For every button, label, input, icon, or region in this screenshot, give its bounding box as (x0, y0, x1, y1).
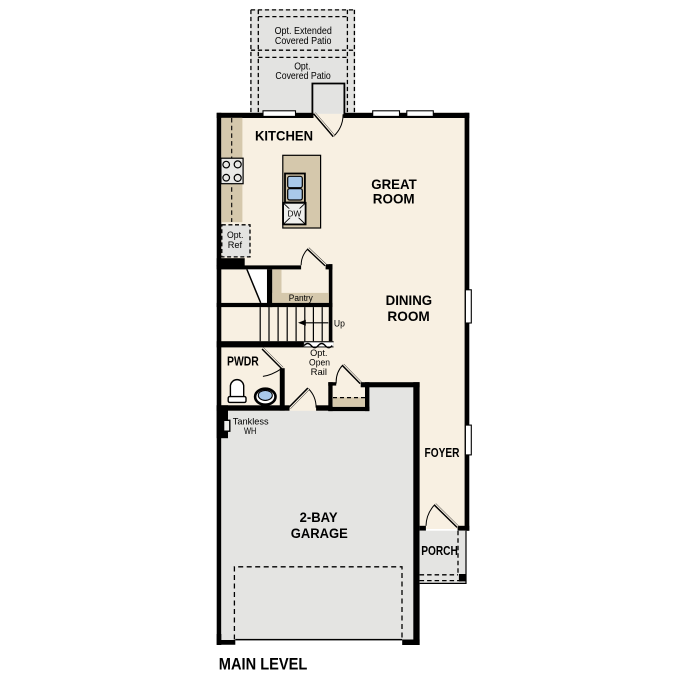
svg-text:MAIN LEVEL: MAIN LEVEL (219, 655, 307, 673)
svg-text:Pantry: Pantry (289, 293, 313, 303)
svg-text:ROOM: ROOM (387, 308, 429, 324)
svg-text:DINING: DINING (386, 292, 433, 308)
svg-text:GARAGE: GARAGE (291, 526, 348, 541)
svg-text:2-BAY: 2-BAY (300, 510, 338, 525)
svg-text:PORCH: PORCH (421, 543, 458, 558)
svg-text:Covered Patio: Covered Patio (275, 71, 331, 82)
svg-text:ROOM: ROOM (373, 191, 415, 207)
svg-text:PWDR: PWDR (227, 354, 259, 368)
svg-text:WH: WH (244, 426, 257, 437)
svg-text:Rail: Rail (311, 367, 327, 378)
svg-text:DW: DW (288, 209, 302, 219)
svg-text:Ref: Ref (228, 240, 243, 251)
svg-text:Up: Up (334, 318, 345, 328)
svg-text:Covered Patio: Covered Patio (275, 36, 332, 47)
svg-text:KITCHEN: KITCHEN (255, 128, 313, 144)
svg-text:FOYER: FOYER (425, 445, 460, 460)
